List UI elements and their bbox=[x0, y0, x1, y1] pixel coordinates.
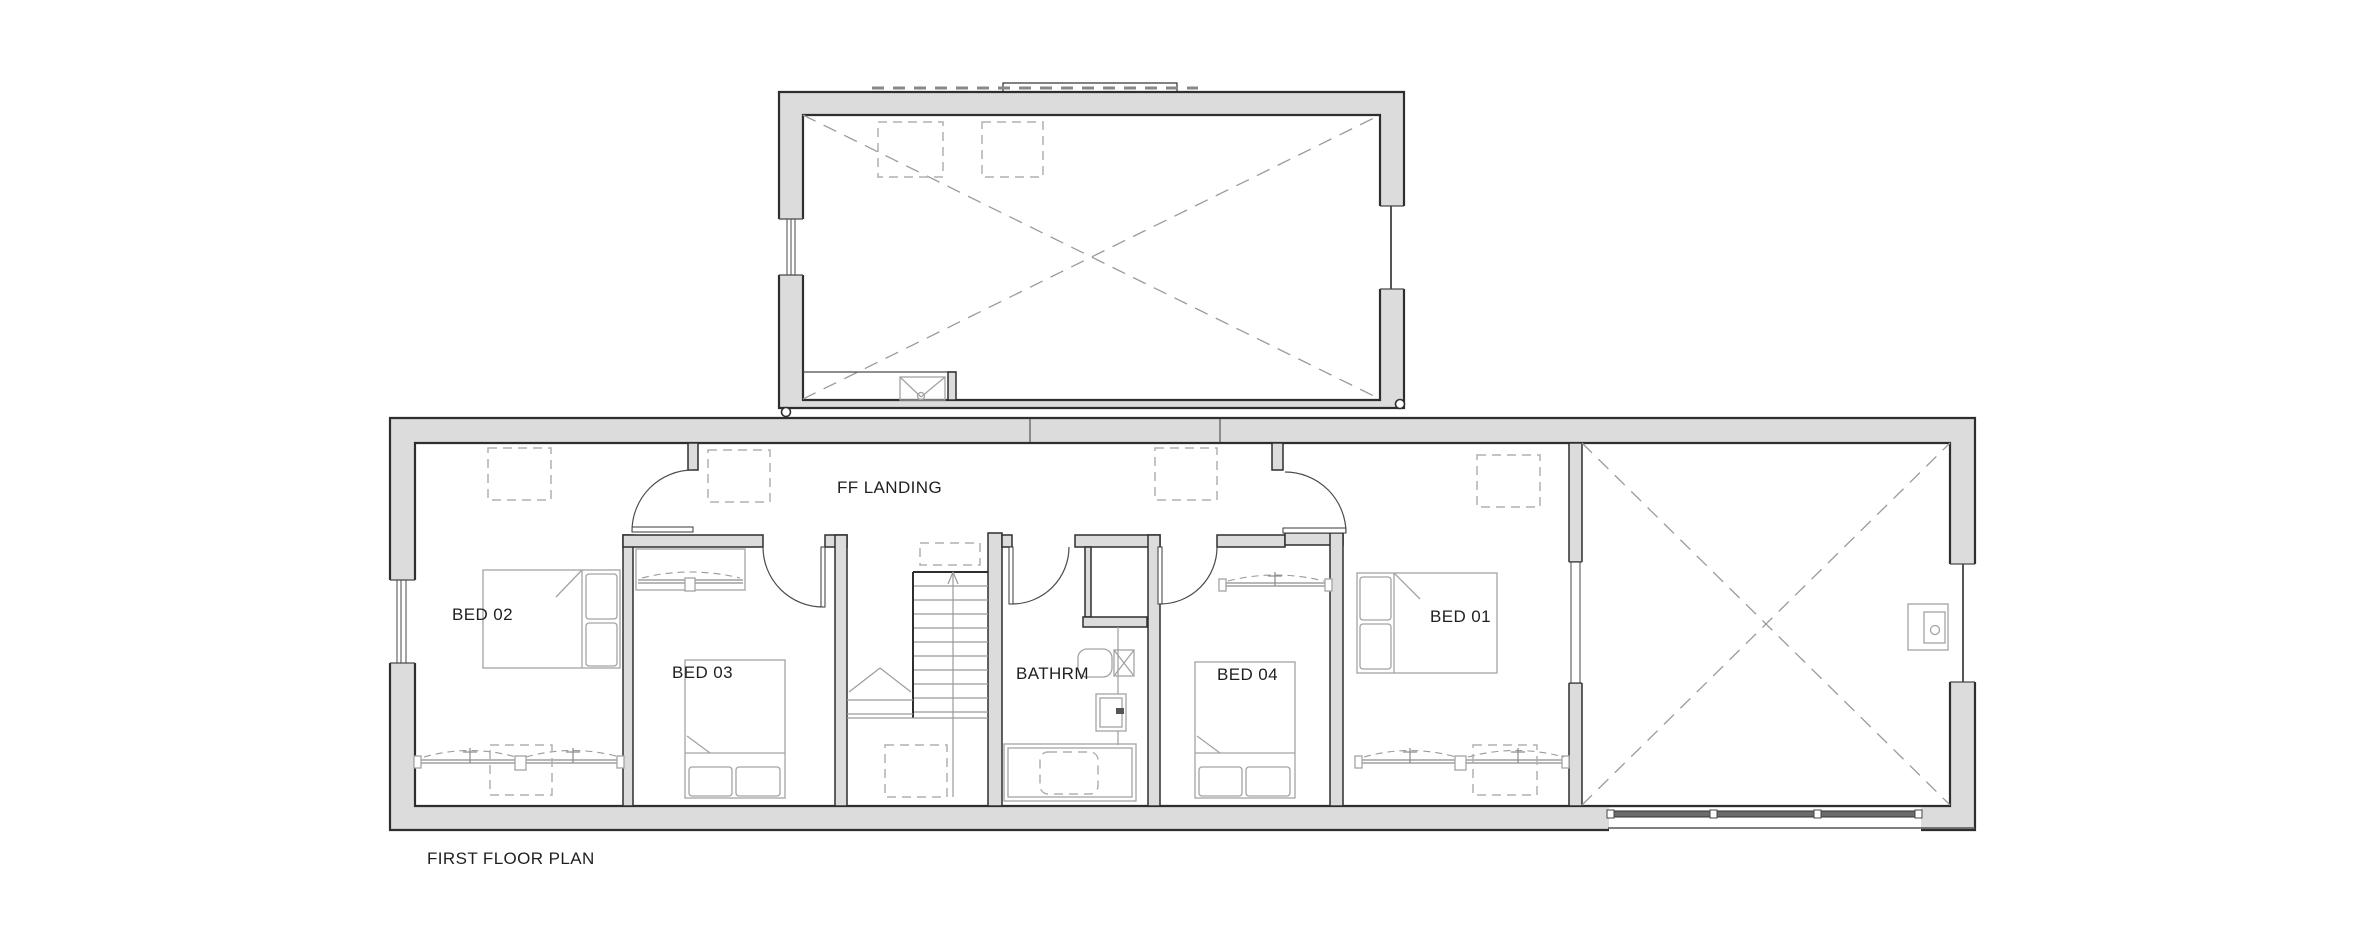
lower-block bbox=[388, 418, 1977, 834]
upper-right-window bbox=[1378, 206, 1406, 289]
upper-shower-room bbox=[803, 372, 956, 400]
garage-door bbox=[1607, 808, 1975, 834]
wall-stub-bed02-door bbox=[688, 443, 698, 470]
wall-bed01-void-lower bbox=[1569, 683, 1582, 806]
wall-bed03-stairs bbox=[835, 535, 847, 806]
bathroom-closet bbox=[1083, 547, 1147, 627]
floor-plan-page: BED 02 BED 03 BATHRM BED 04 BED 01 FF LA… bbox=[0, 0, 2364, 952]
bathtub bbox=[1004, 744, 1136, 801]
skylight-dashed-square bbox=[1477, 455, 1540, 507]
lower-right-window bbox=[1948, 564, 1977, 682]
upper-block-walls bbox=[779, 92, 1404, 408]
junction-circle bbox=[782, 408, 791, 417]
upper-block bbox=[777, 83, 1406, 417]
void-cross-garage bbox=[1582, 443, 1950, 805]
room-label-bed04: BED 04 bbox=[1217, 665, 1278, 684]
bed01-void-glazing bbox=[1567, 562, 1584, 683]
upper-left-window bbox=[777, 219, 805, 275]
door-bed03 bbox=[763, 547, 825, 607]
room-label-bed02: BED 02 bbox=[452, 605, 513, 624]
room-label-bathroom: BATHRM bbox=[1016, 664, 1089, 683]
wardrobe-rail bbox=[1219, 572, 1332, 591]
door-bed02 bbox=[632, 470, 693, 532]
wall-bed04-top bbox=[1217, 535, 1285, 547]
sink bbox=[1096, 694, 1126, 731]
wall-stairs-bathroom bbox=[988, 533, 1002, 806]
lower-left-window bbox=[388, 580, 417, 663]
skylight-dashed-square bbox=[1155, 448, 1217, 500]
door-bathroom bbox=[1009, 547, 1069, 604]
wall-stub-bed01-door bbox=[1272, 443, 1283, 470]
void-wall-unit bbox=[1908, 604, 1948, 650]
shower-tray bbox=[900, 377, 945, 400]
wardrobe-rail bbox=[414, 748, 624, 770]
room-label-bed01: BED 01 bbox=[1430, 607, 1491, 626]
wardrobe bbox=[636, 549, 745, 591]
room-label-landing: FF LANDING bbox=[837, 478, 942, 497]
drawing-title: FIRST FLOOR PLAN bbox=[427, 849, 595, 868]
wall-bed01-void-upper bbox=[1569, 443, 1582, 562]
room-label-bed03: BED 03 bbox=[672, 663, 733, 682]
floor-plan-drawing: BED 02 BED 03 BATHRM BED 04 BED 01 FF LA… bbox=[0, 0, 2364, 952]
wall-stub-bathroom-door bbox=[1002, 535, 1012, 547]
dashed-square bbox=[1473, 745, 1537, 795]
skylight-dashed-square bbox=[708, 450, 770, 502]
wall-bed04-bed01 bbox=[1330, 533, 1343, 806]
wall-bed03-top bbox=[623, 535, 763, 547]
skylight-dashed-square bbox=[982, 122, 1043, 177]
door-bed04 bbox=[1158, 547, 1217, 604]
junction-circle bbox=[1396, 400, 1405, 409]
skylight-dashed-square bbox=[878, 122, 943, 177]
staircase bbox=[847, 543, 988, 797]
door-bed01 bbox=[1283, 472, 1346, 533]
bed04-furniture bbox=[1195, 572, 1332, 798]
skylight-dashed-square bbox=[488, 448, 551, 500]
bed02-furniture bbox=[414, 448, 624, 795]
sink-tap bbox=[1116, 708, 1124, 714]
stairs-dashed-square bbox=[885, 745, 947, 797]
void-cross-upper bbox=[803, 115, 1380, 399]
